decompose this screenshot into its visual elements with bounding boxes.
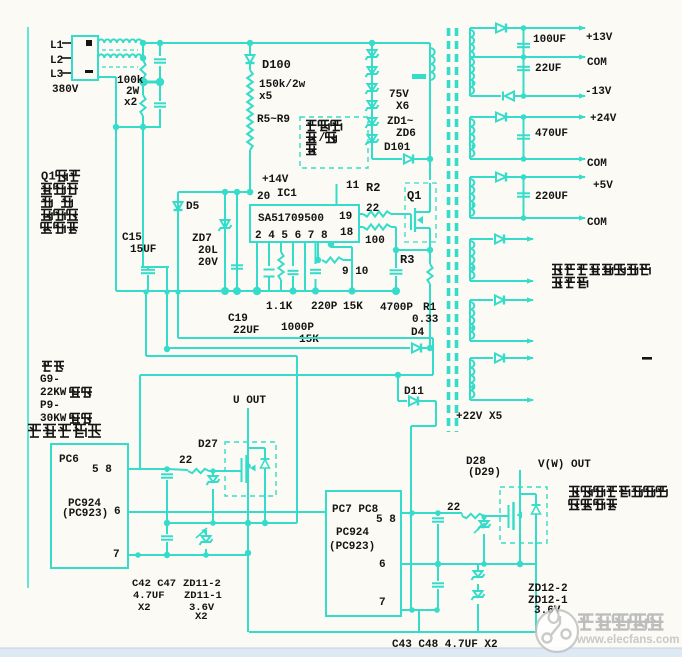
svg-text:ZD6: ZD6: [396, 128, 416, 140]
svg-text:2 4 5 6 7 8: 2 4 5 6 7 8: [255, 230, 328, 242]
svg-text:COM: COM: [587, 158, 607, 170]
svg-text:15UF: 15UF: [130, 244, 156, 256]
svg-text:x5: x5: [259, 91, 273, 103]
svg-text:P9-: P9-: [40, 400, 60, 412]
svg-text:22UF: 22UF: [535, 63, 561, 75]
svg-text:4700P: 4700P: [380, 302, 413, 314]
svg-text:PC924: PC924: [336, 527, 369, 539]
svg-text:ZD11-2: ZD11-2: [183, 578, 221, 590]
svg-text:ZD12-2: ZD12-2: [528, 583, 568, 595]
svg-text:1.1K: 1.1K: [266, 301, 293, 313]
svg-text:7: 7: [113, 549, 120, 561]
svg-text:(PC923): (PC923): [329, 541, 375, 553]
svg-text:C42 C47: C42 C47: [132, 578, 176, 590]
svg-text:X6: X6: [396, 101, 409, 113]
svg-text:30KW: 30KW: [40, 413, 67, 425]
svg-text:IC1: IC1: [277, 188, 297, 200]
svg-text:22: 22: [179, 455, 192, 467]
svg-text:U OUT: U OUT: [233, 395, 266, 407]
svg-text:+13V: +13V: [586, 32, 613, 44]
svg-text:100UF: 100UF: [533, 34, 566, 46]
svg-text:75V: 75V: [389, 89, 409, 101]
svg-text:9 10: 9 10: [342, 266, 368, 278]
svg-text:5 8: 5 8: [92, 464, 112, 476]
svg-text:6: 6: [379, 559, 386, 571]
svg-text:4.7UF: 4.7UF: [133, 590, 165, 602]
svg-text:www.elecfans.com: www.elecfans.com: [576, 634, 679, 646]
svg-text:+5V: +5V: [593, 180, 613, 192]
svg-text:R3: R3: [400, 253, 414, 267]
svg-text:470UF: 470UF: [535, 128, 568, 140]
svg-text:20L: 20L: [198, 245, 218, 257]
svg-text:C19: C19: [228, 313, 248, 325]
svg-text:220P: 220P: [311, 301, 338, 313]
svg-text:COM: COM: [587, 217, 607, 229]
svg-text:L1: L1: [50, 40, 64, 52]
svg-text:(PC923): (PC923): [62, 508, 108, 520]
svg-text:D100: D100: [262, 58, 291, 72]
svg-text:5 8: 5 8: [376, 514, 396, 526]
svg-text:V(W) OUT: V(W) OUT: [538, 459, 591, 471]
svg-text:-13V: -13V: [585, 86, 612, 98]
svg-text:L3: L3: [50, 69, 64, 81]
svg-text:Q: Q: [41, 170, 48, 184]
svg-text:1: 1: [49, 170, 56, 184]
svg-text:15K: 15K: [299, 334, 319, 346]
svg-text:x2: x2: [124, 97, 137, 109]
svg-text:C43 C48 4.7UF X2: C43 C48 4.7UF X2: [392, 639, 498, 651]
svg-text:ZD11-1: ZD11-1: [184, 590, 222, 602]
svg-text:0.33: 0.33: [412, 314, 439, 326]
svg-text:22: 22: [447, 502, 460, 514]
svg-text:R2: R2: [366, 181, 380, 195]
svg-text:6: 6: [114, 506, 121, 518]
svg-text:G9-: G9-: [40, 374, 60, 386]
svg-text:L2: L2: [50, 55, 63, 67]
svg-text:100: 100: [365, 235, 385, 247]
svg-text:ZD1~: ZD1~: [387, 116, 414, 128]
svg-text:X2: X2: [138, 602, 151, 614]
svg-text:380V: 380V: [52, 84, 79, 96]
svg-text:D101: D101: [384, 142, 411, 154]
svg-text:C15: C15: [122, 232, 142, 244]
svg-text:19: 19: [339, 211, 352, 223]
svg-text:150k/2w: 150k/2w: [259, 79, 306, 91]
svg-text:22KW: 22KW: [40, 387, 67, 399]
svg-text:X2: X2: [195, 611, 208, 623]
svg-text:22UF: 22UF: [233, 325, 259, 337]
svg-text:/: /: [319, 132, 326, 145]
svg-text:(D29): (D29): [468, 467, 501, 479]
svg-text:7: 7: [379, 597, 386, 609]
svg-text:ZD7: ZD7: [192, 233, 212, 245]
svg-text:PC6: PC6: [59, 454, 79, 466]
svg-text:D5: D5: [186, 201, 200, 213]
svg-text:15K: 15K: [343, 301, 363, 313]
svg-text:Q1: Q1: [407, 189, 421, 203]
svg-text:1000P: 1000P: [281, 322, 314, 334]
svg-text:COM: COM: [587, 57, 607, 69]
svg-text:+22V X5: +22V X5: [456, 411, 503, 423]
svg-text:20: 20: [257, 191, 270, 203]
svg-text:220UF: 220UF: [535, 191, 568, 203]
svg-text:R1: R1: [423, 302, 437, 314]
svg-text:+24V: +24V: [590, 113, 617, 125]
svg-text:D11: D11: [404, 386, 424, 398]
svg-text:R5~R9: R5~R9: [257, 114, 290, 126]
svg-text:D27: D27: [198, 439, 218, 451]
svg-text:18: 18: [340, 227, 354, 239]
svg-text:20V: 20V: [198, 257, 218, 269]
svg-text:PC7 PC8: PC7 PC8: [332, 504, 379, 516]
svg-text:11: 11: [346, 180, 360, 192]
svg-text:SA51709500: SA51709500: [258, 213, 324, 225]
svg-text:+14V: +14V: [262, 174, 289, 186]
